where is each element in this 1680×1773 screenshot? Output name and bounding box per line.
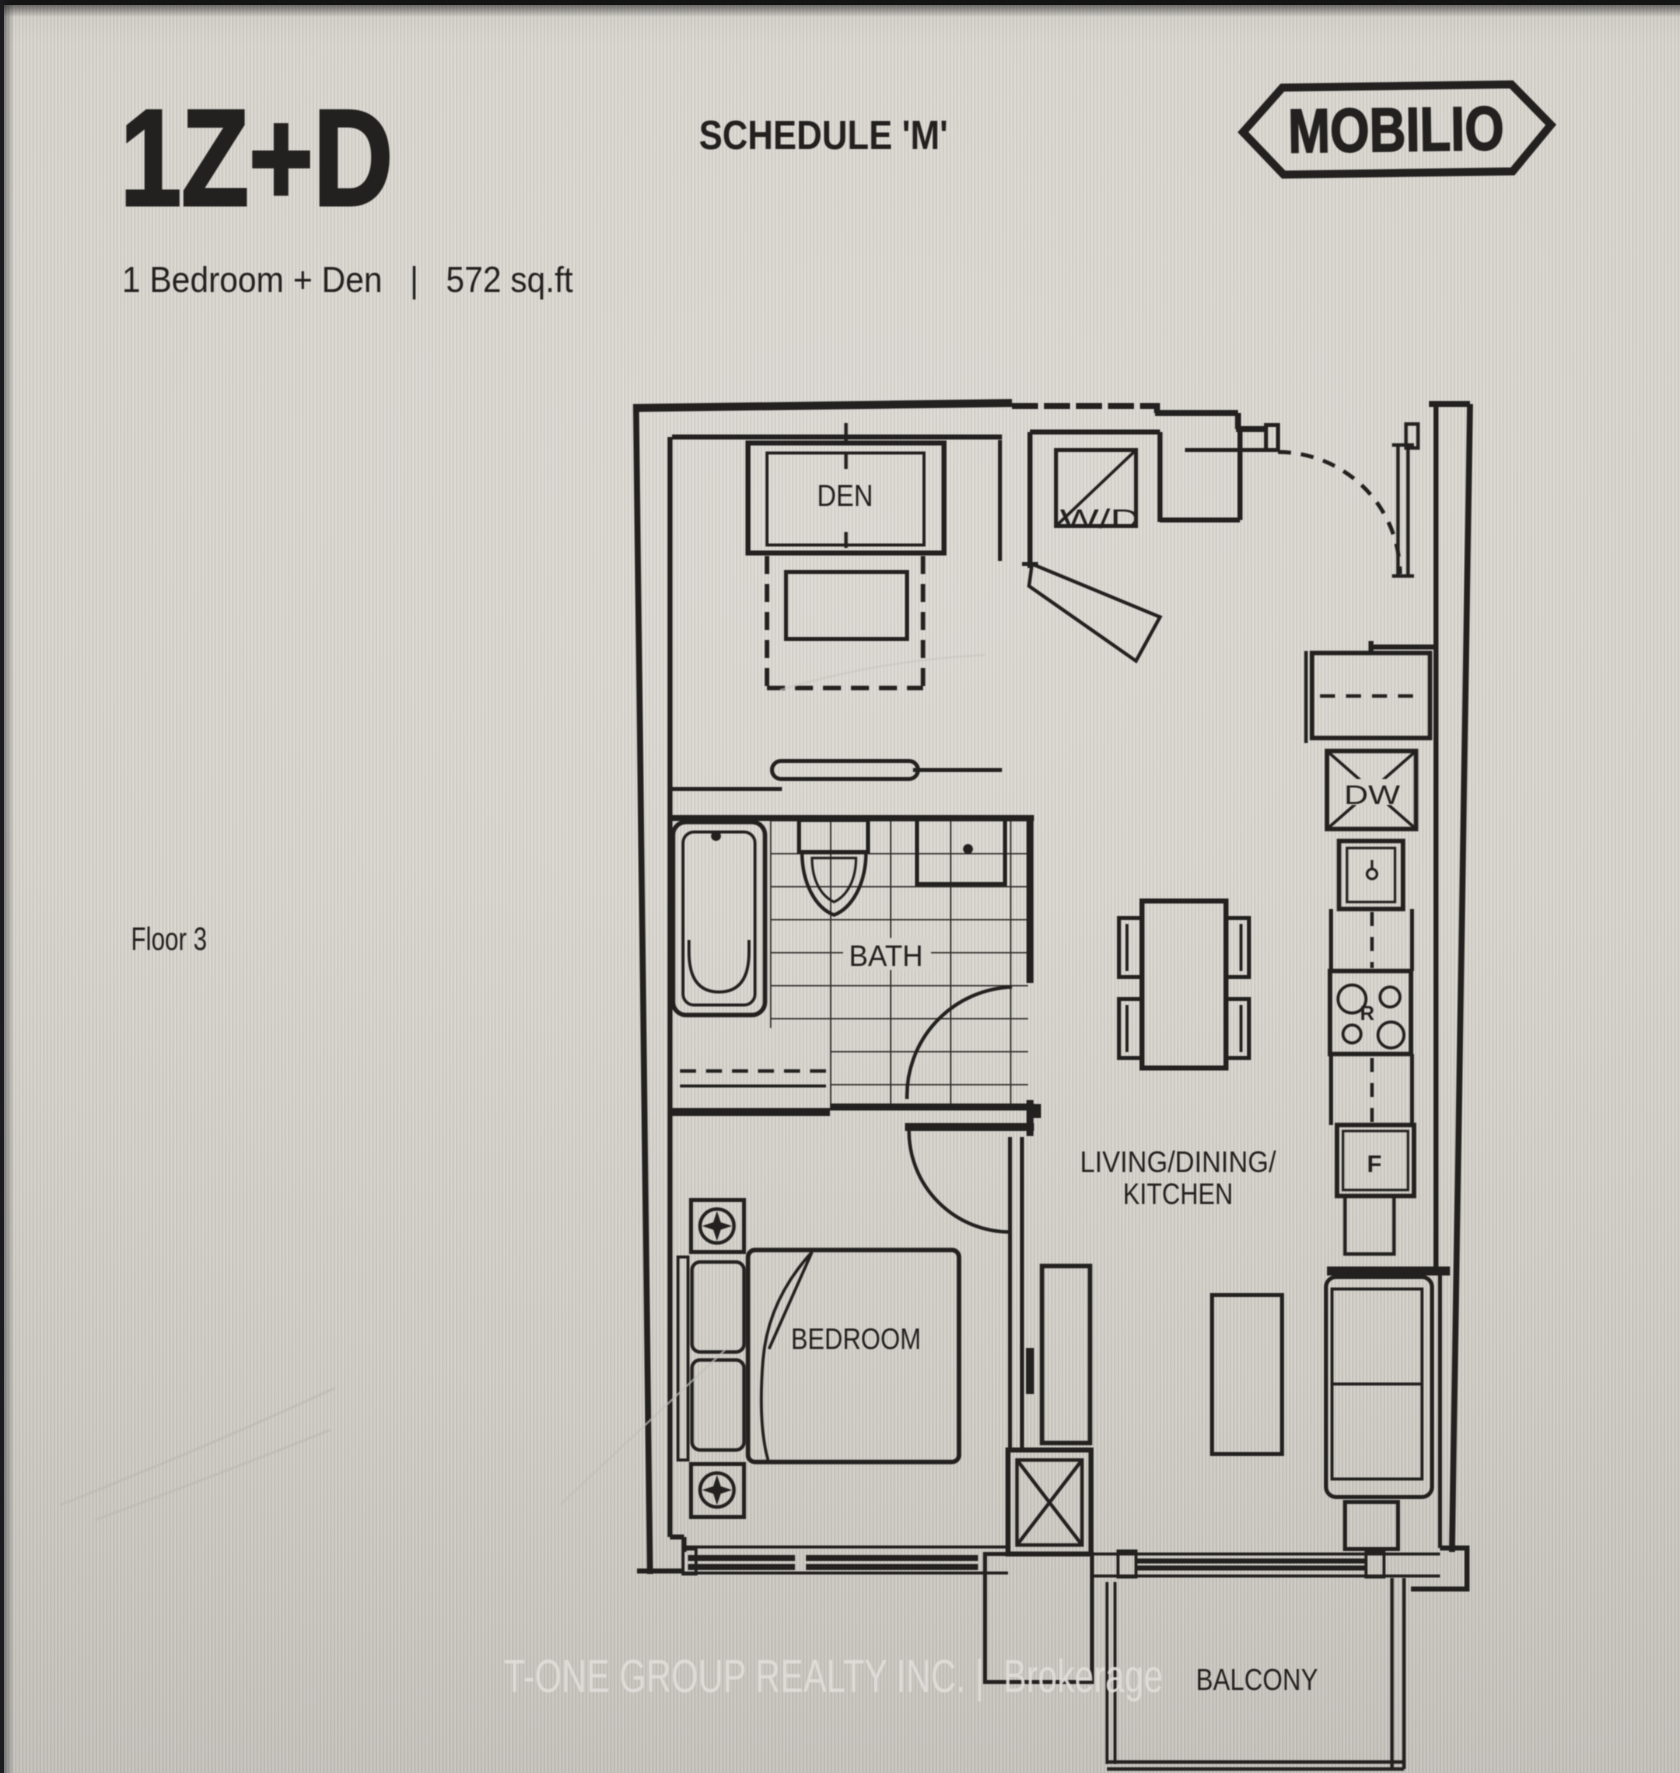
svg-text:BATH: BATH <box>849 940 923 973</box>
svg-text:SCHEDULE 'M': SCHEDULE 'M' <box>699 112 948 158</box>
svg-text:W/D: W/D <box>1060 504 1140 534</box>
svg-text:MOBILIO: MOBILIO <box>1288 95 1505 167</box>
svg-text:BALCONY: BALCONY <box>1196 1662 1318 1697</box>
svg-text:F: F <box>1367 1151 1382 1178</box>
svg-text:Floor 3: Floor 3 <box>131 921 207 957</box>
svg-text:R: R <box>1360 1003 1375 1025</box>
svg-text:BEDROOM: BEDROOM <box>791 1323 921 1356</box>
svg-text:DEN: DEN <box>817 478 873 513</box>
svg-text:T-ONE GROUP REALTY INC. | Bro: T-ONE GROUP REALTY INC. | Brokerage <box>504 1650 1163 1702</box>
svg-text:KITCHEN: KITCHEN <box>1123 1178 1233 1211</box>
svg-text:DW: DW <box>1344 780 1401 810</box>
svg-text:1Z+D: 1Z+D <box>120 82 393 235</box>
svg-text:1 Bedroom + Den | 572 sq.f: 1 Bedroom + Den | 572 sq.ft <box>122 259 573 300</box>
svg-text:LIVING/DINING/: LIVING/DINING/ <box>1080 1146 1277 1179</box>
